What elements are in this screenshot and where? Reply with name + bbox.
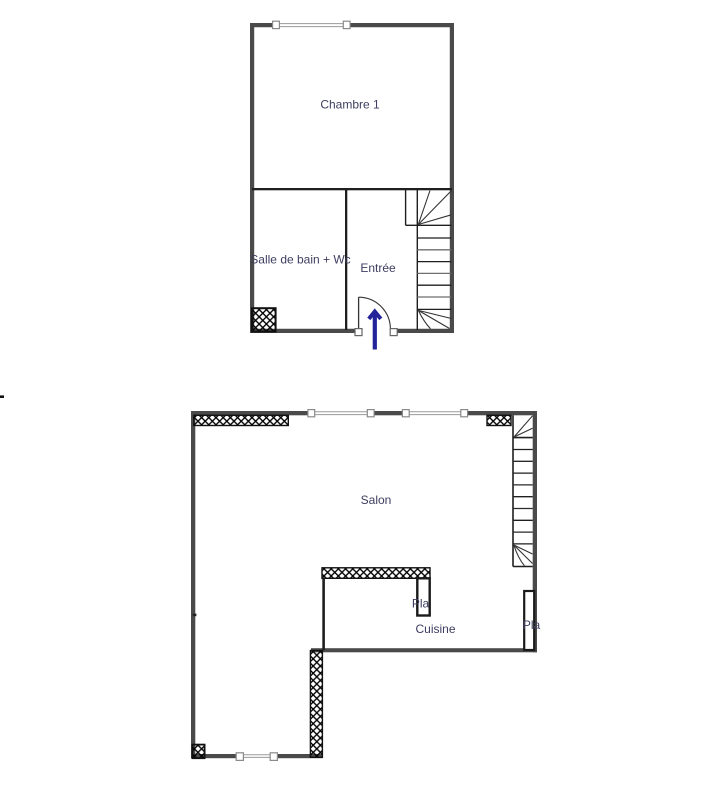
svg-text:Cuisine: Cuisine xyxy=(415,622,455,636)
svg-text:Chambre 1: Chambre 1 xyxy=(320,98,380,112)
svg-text:Entrée: Entrée xyxy=(360,261,396,275)
svg-text:Salon: Salon xyxy=(361,493,392,507)
svg-text:Pla: Pla xyxy=(523,618,541,632)
svg-text:Salle de bain + Wc: Salle de bain + Wc xyxy=(250,253,350,267)
svg-text:Pla: Pla xyxy=(412,597,430,611)
